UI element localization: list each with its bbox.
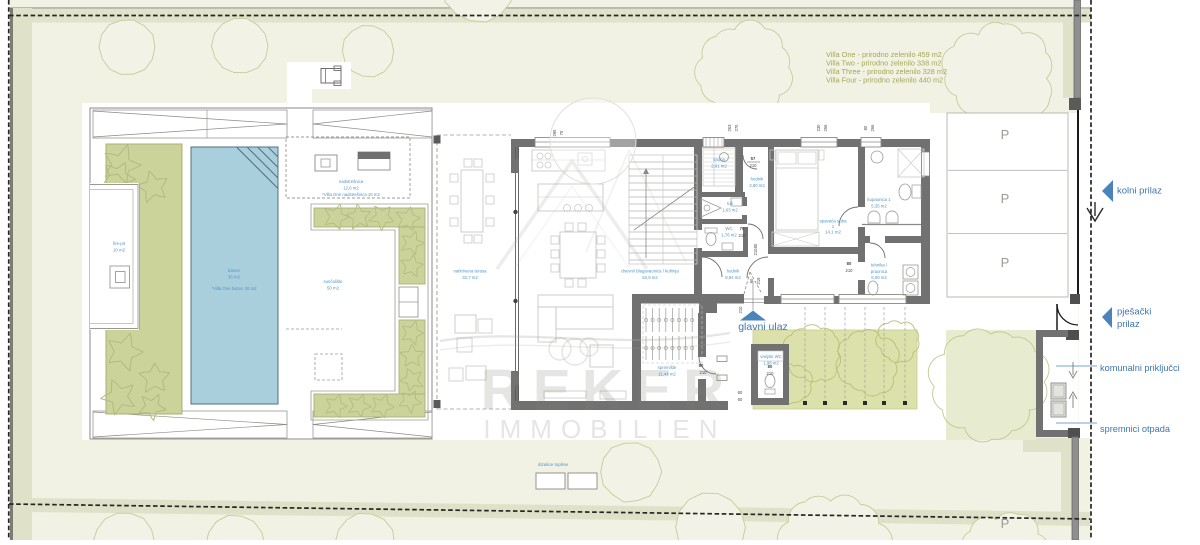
svg-text:57: 57 [751, 156, 756, 161]
svg-text:1,76 m2: 1,76 m2 [721, 232, 737, 237]
svg-text:80: 80 [863, 125, 868, 130]
svg-text:praonica: praonica [871, 269, 888, 274]
svg-text:210: 210 [700, 370, 708, 375]
svg-text:50 m2: 50 m2 [327, 285, 340, 290]
svg-text:12,6 m2: 12,6 m2 [343, 185, 359, 190]
svg-text:70: 70 [740, 226, 745, 231]
svg-text:hodnik: hodnik [727, 269, 741, 274]
svg-text:210: 210 [750, 163, 758, 168]
svg-text:8,94 m2: 8,94 m2 [725, 275, 741, 280]
svg-text:5,35 m2: 5,35 m2 [871, 203, 887, 208]
svg-text:prilaz: prilaz [1117, 319, 1140, 330]
svg-text:P: P [1001, 516, 1010, 531]
svg-text:kupaonica 1: kupaonica 1 [867, 197, 891, 202]
svg-text:36 m2: 36 m2 [228, 274, 241, 279]
svg-text:2,91 m2: 2,91 m2 [711, 163, 727, 168]
svg-text:dnevni/ blagavaonica / kuhinja: dnevni/ blagavaonica / kuhinja [621, 269, 679, 274]
svg-text:70: 70 [559, 130, 564, 135]
svg-text:80: 80 [699, 363, 704, 368]
svg-text:266: 266 [823, 124, 828, 132]
svg-text:spremište: spremište [658, 365, 677, 370]
svg-text:fire-pit: fire-pit [113, 241, 126, 246]
svg-text:60: 60 [738, 390, 743, 395]
svg-text:kolni prilaz: kolni prilaz [1117, 186, 1162, 197]
svg-text:WC: WC [725, 226, 732, 231]
svg-text:1,63 m2: 1,63 m2 [722, 207, 738, 212]
svg-text:spavaća soba: spavaća soba [819, 219, 847, 224]
svg-text:*Villa One nadstrešnica 10 m2: *Villa One nadstrešnica 10 m2 [322, 192, 380, 197]
svg-text:vanjski WC: vanjski WC [760, 354, 782, 359]
svg-text:210: 210 [846, 268, 854, 273]
svg-text:60: 60 [738, 397, 743, 402]
svg-text:hodnik: hodnik [751, 177, 765, 182]
svg-text:230: 230 [816, 124, 821, 132]
svg-text:80: 80 [753, 243, 758, 248]
svg-text:dizalice topline: dizalice topline [538, 462, 569, 467]
svg-text:komunalni priključci: komunalni priključci [1100, 363, 1180, 373]
svg-text:3,80 m2: 3,80 m2 [749, 183, 765, 188]
svg-text:62,9 m2: 62,9 m2 [642, 275, 658, 280]
svg-text:263: 263 [727, 124, 732, 132]
svg-text:270: 270 [734, 124, 739, 132]
svg-text:P: P [1001, 127, 1010, 142]
svg-text:210: 210 [739, 233, 747, 238]
svg-text:nadstrešnica: nadstrešnica [339, 179, 364, 184]
svg-text:natkrivena terasa: natkrivena terasa [454, 269, 488, 274]
svg-text:P: P [1001, 255, 1010, 270]
svg-text:11,44 m2: 11,44 m2 [658, 371, 676, 376]
svg-text:210: 210 [767, 371, 775, 376]
svg-text:REKER: REKER [481, 358, 736, 422]
svg-text:pješački: pješački [1117, 307, 1151, 318]
svg-text:80: 80 [768, 364, 773, 369]
svg-text:14,1 m2: 14,1 m2 [825, 230, 841, 235]
svg-text:210: 210 [753, 248, 758, 256]
svg-text:10 m2: 10 m2 [113, 247, 126, 252]
svg-text:IMMOBILIEN: IMMOBILIEN [483, 414, 726, 444]
svg-text:Villa Four - prirodno zelenilo: Villa Four - prirodno zelenilo 440 m2 [826, 76, 943, 85]
svg-text:glavni ulaz: glavni ulaz [738, 321, 788, 333]
svg-text:80: 80 [847, 261, 852, 266]
svg-text:sauna: sauna [713, 157, 725, 162]
svg-text:32,7 m2: 32,7 m2 [462, 275, 478, 280]
svg-text:P: P [1001, 191, 1010, 206]
svg-text:*Villa One bazen 30 m2: *Villa One bazen 30 m2 [211, 286, 257, 291]
svg-text:tuš: tuš [727, 201, 733, 206]
svg-text:210: 210 [738, 306, 743, 314]
svg-text:spremnici otpada: spremnici otpada [1100, 424, 1171, 434]
svg-text:295: 295 [552, 129, 557, 137]
svg-text:tehnika /: tehnika / [871, 263, 888, 268]
svg-text:sunčalište: sunčalište [323, 279, 343, 284]
svg-text:bazen: bazen [228, 268, 240, 273]
svg-text:266: 266 [870, 124, 875, 132]
svg-text:219: 219 [756, 277, 761, 285]
svg-text:6,00 m2: 6,00 m2 [871, 275, 887, 280]
